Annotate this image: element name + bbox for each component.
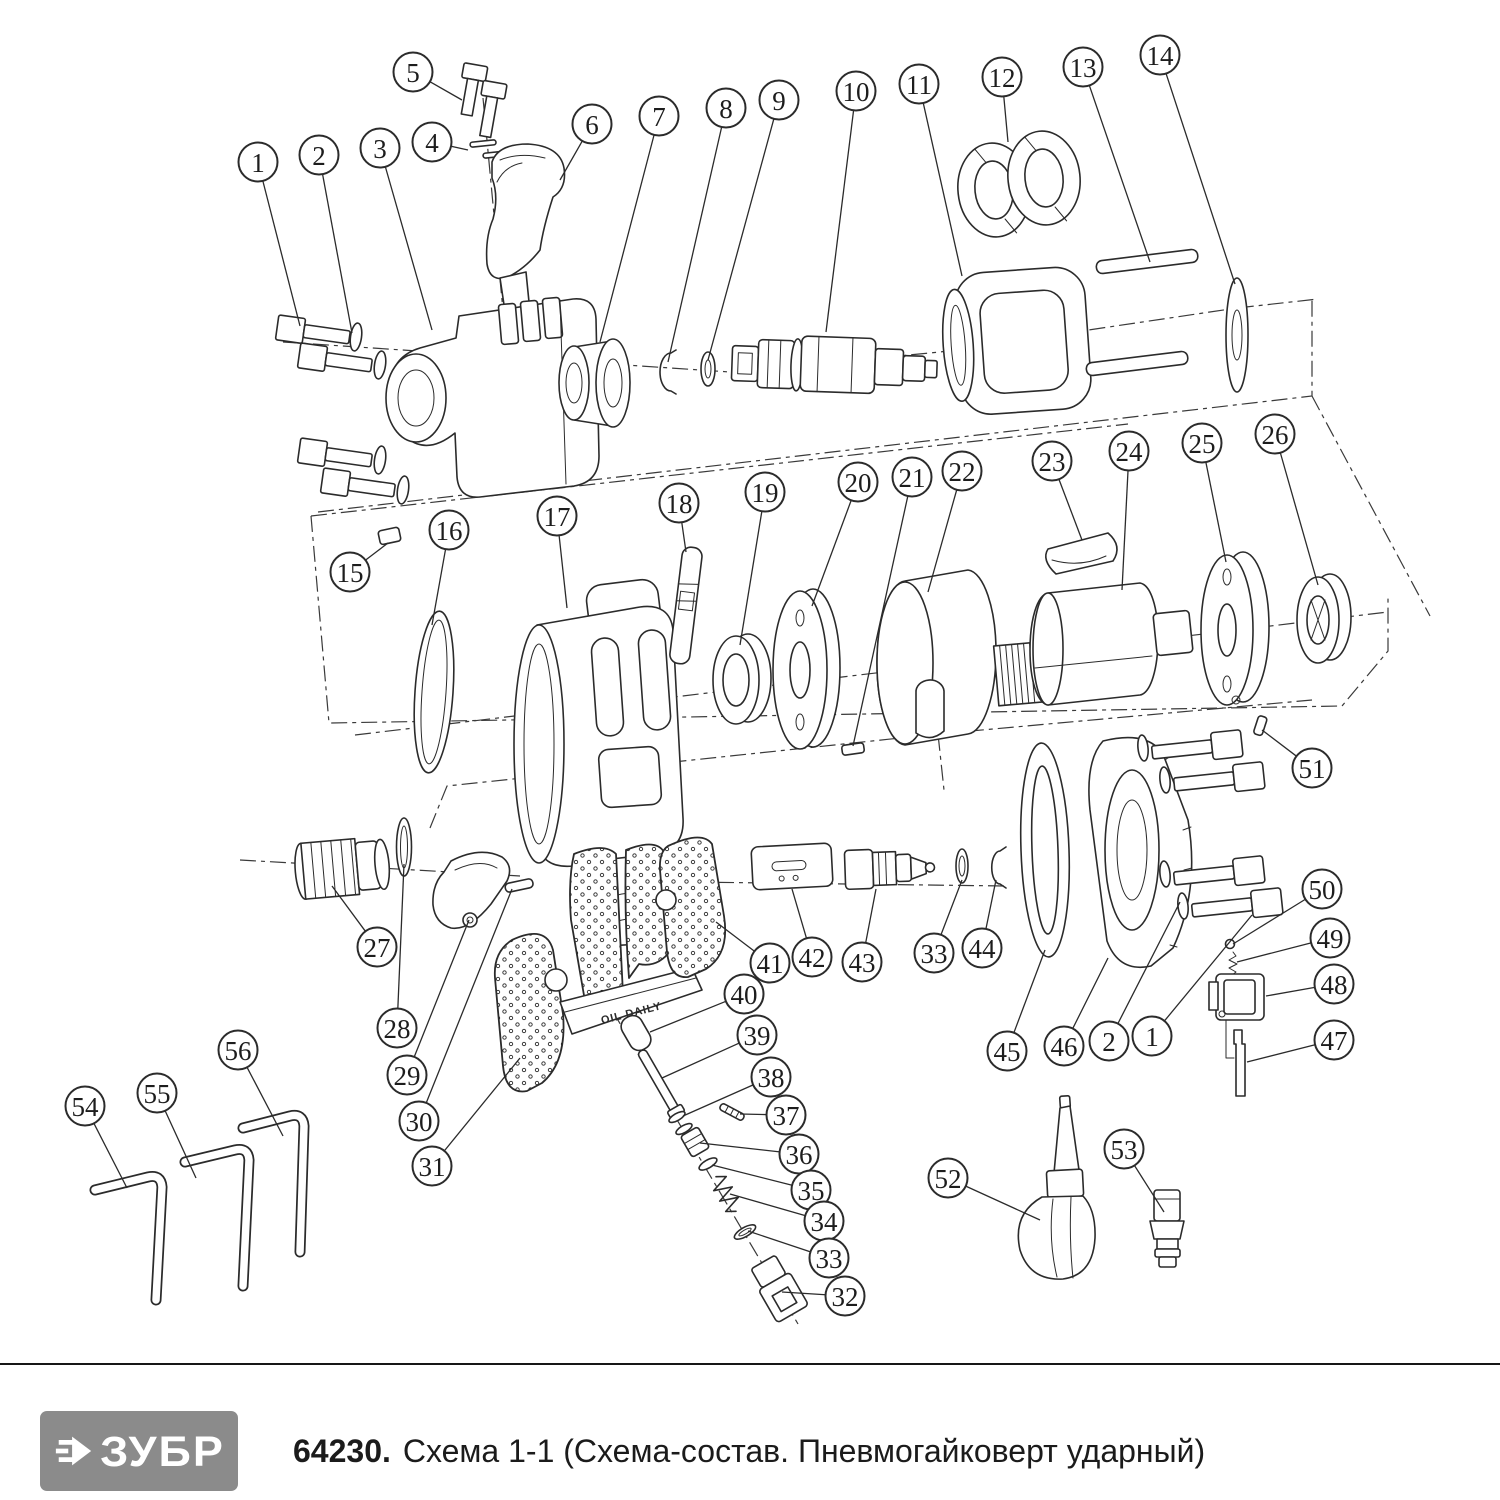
svg-text:7: 7 [652, 102, 666, 132]
svg-text:5: 5 [406, 58, 420, 88]
svg-text:36: 36 [786, 1140, 813, 1170]
svg-text:26: 26 [1262, 420, 1289, 450]
callout-16: 16 [430, 511, 469, 626]
svg-text:1: 1 [1145, 1022, 1159, 1052]
callout-45: 45 [988, 950, 1046, 1071]
svg-text:27: 27 [364, 933, 391, 963]
svg-text:38: 38 [758, 1063, 785, 1093]
callout-44: 44 [963, 880, 1002, 968]
callout-23: 23 [1033, 442, 1083, 541]
svg-text:43: 43 [849, 948, 876, 978]
callout-25: 25 [1183, 424, 1227, 563]
part-oring-16 [409, 610, 458, 774]
callout-4: 4 [413, 123, 469, 162]
callout-43: 43 [843, 889, 882, 982]
svg-text:28: 28 [384, 1014, 411, 1044]
part-washer-9 [701, 352, 715, 386]
callout-33: 33 [915, 880, 963, 973]
part-hex-keys [95, 1115, 304, 1300]
part-trigger-pin [504, 878, 533, 893]
part-valve-spool [844, 847, 935, 889]
footer-caption: 64230.Схема 1-1 (Схема-состав. Пневмогай… [293, 1433, 1205, 1470]
svg-text:25: 25 [1189, 429, 1216, 459]
callout-48: 48 [1266, 965, 1354, 1004]
svg-text:51: 51 [1299, 754, 1326, 784]
part-valve-block [751, 843, 833, 890]
svg-text:12: 12 [989, 63, 1016, 93]
svg-text:34: 34 [811, 1207, 839, 1237]
part-gasket-45 [1017, 742, 1072, 958]
svg-text:42: 42 [799, 943, 826, 973]
part-oil-bottle [1018, 1096, 1095, 1279]
callout-6: 6 [560, 105, 612, 181]
svg-text:31: 31 [419, 1152, 446, 1182]
part-rear-endplate [1201, 552, 1269, 705]
svg-text:40: 40 [731, 980, 758, 1010]
callout-47: 47 [1247, 1021, 1354, 1063]
exploded-view-drawing: OIL DAILY [0, 0, 1500, 1360]
svg-text:6: 6 [585, 110, 599, 140]
svg-text:2: 2 [1102, 1027, 1116, 1057]
svg-text:33: 33 [816, 1244, 843, 1274]
svg-text:24: 24 [1116, 437, 1144, 467]
svg-text:13: 13 [1070, 53, 1097, 83]
callout-14: 14 [1141, 36, 1236, 285]
zubr-arrow-icon [53, 1430, 95, 1472]
callout-26: 26 [1256, 415, 1319, 586]
part-washer-14 [1226, 278, 1248, 392]
part-cylinder [877, 570, 996, 745]
svg-text:2: 2 [312, 141, 326, 171]
callout-15: 15 [331, 543, 389, 592]
svg-text:39: 39 [744, 1021, 771, 1051]
callout-27: 27 [332, 886, 397, 967]
part-bushing [559, 339, 630, 427]
svg-text:37: 37 [773, 1101, 800, 1131]
part-bearing-19 [713, 634, 771, 724]
svg-text:49: 49 [1317, 924, 1344, 954]
svg-text:8: 8 [719, 94, 733, 124]
callout-24: 24 [1110, 432, 1149, 591]
callout-41: 41 [716, 922, 790, 983]
callout-13: 13 [1064, 48, 1151, 263]
callout-19: 19 [740, 473, 785, 646]
svg-text:4: 4 [425, 128, 439, 158]
svg-text:3: 3 [373, 134, 387, 164]
part-air-inlet [293, 836, 392, 900]
part-flat-bar [1226, 1020, 1245, 1096]
callout-1: 1 [239, 143, 301, 327]
callout-11: 11 [900, 65, 963, 277]
doc-code: 64230. [293, 1433, 391, 1469]
part-oring-33 [956, 849, 968, 883]
footer-divider [0, 1363, 1500, 1365]
svg-text:32: 32 [832, 1282, 859, 1312]
part-clip-44 [992, 847, 1006, 888]
callout-36: 36 [700, 1135, 819, 1174]
svg-text:55: 55 [144, 1079, 171, 1109]
svg-text:1: 1 [251, 148, 265, 178]
svg-text:15: 15 [337, 558, 364, 588]
svg-text:14: 14 [1147, 41, 1175, 71]
svg-text:50: 50 [1309, 875, 1336, 905]
callout-29: 29 [388, 920, 470, 1095]
svg-text:48: 48 [1321, 970, 1348, 1000]
svg-text:54: 54 [72, 1092, 100, 1122]
callout-8: 8 [668, 89, 746, 363]
part-throttle-lever [487, 144, 565, 318]
callout-12: 12 [983, 58, 1022, 143]
svg-text:47: 47 [1321, 1026, 1348, 1056]
zubr-logo-text: ЗУБР [100, 1430, 225, 1473]
svg-text:20: 20 [845, 468, 872, 498]
svg-text:21: 21 [899, 463, 926, 493]
svg-text:41: 41 [757, 949, 784, 979]
svg-text:22: 22 [949, 457, 976, 487]
part-rear-cover [1089, 738, 1192, 968]
part-front-endplate [773, 589, 840, 749]
part-grip-left [495, 934, 567, 1092]
callout-42: 42 [792, 889, 832, 977]
part-detent-spring [1229, 952, 1237, 976]
zubr-logo: ЗУБР [40, 1411, 238, 1491]
part-screws [452, 63, 509, 139]
svg-text:10: 10 [843, 77, 870, 107]
callout-7: 7 [600, 97, 679, 343]
svg-text:9: 9 [772, 86, 786, 116]
svg-text:56: 56 [225, 1036, 252, 1066]
svg-text:11: 11 [906, 70, 932, 100]
callout-10: 10 [826, 72, 876, 333]
callout-17: 17 [538, 497, 577, 609]
svg-text:52: 52 [935, 1164, 962, 1194]
part-rotor-blade [669, 546, 703, 665]
svg-text:33: 33 [921, 939, 948, 969]
svg-text:16: 16 [436, 516, 463, 546]
callout-51: 51 [1262, 730, 1332, 788]
callout-22: 22 [928, 452, 982, 593]
callout-2: 2 [300, 136, 353, 334]
svg-text:19: 19 [752, 478, 779, 508]
part-switch-block [1209, 974, 1264, 1020]
svg-text:44: 44 [969, 934, 997, 964]
part-hammers [953, 127, 1084, 240]
part-pin-15 [378, 527, 401, 545]
callout-49: 49 [1237, 919, 1350, 963]
svg-text:18: 18 [666, 489, 693, 519]
part-air-fitting [1150, 1190, 1184, 1267]
part-trigger [433, 852, 510, 928]
part-retaining-clip [660, 350, 676, 394]
part-bearing-26 [1297, 574, 1351, 663]
part-hammer-cage [938, 265, 1093, 417]
svg-text:53: 53 [1111, 1135, 1138, 1165]
part-anvil [731, 334, 938, 396]
svg-text:29: 29 [394, 1061, 421, 1091]
callout-20: 20 [812, 463, 878, 607]
callout-54: 54 [66, 1087, 128, 1189]
callout-37: 37 [740, 1096, 806, 1135]
svg-text:23: 23 [1039, 447, 1066, 477]
part-hammer-pins [1086, 249, 1199, 376]
svg-text:46: 46 [1051, 1032, 1078, 1062]
callout-52: 52 [929, 1159, 1041, 1221]
svg-text:45: 45 [994, 1037, 1021, 1067]
callout-18: 18 [660, 484, 699, 553]
part-rotor [994, 583, 1193, 706]
svg-text:17: 17 [544, 502, 571, 532]
callout-5: 5 [394, 53, 463, 101]
doc-title: Схема 1-1 (Схема-состав. Пневмогайковерт… [403, 1433, 1205, 1469]
svg-text:30: 30 [406, 1107, 433, 1137]
footer: ЗУБР 64230.Схема 1-1 (Схема-состав. Пнев… [40, 1410, 1205, 1492]
